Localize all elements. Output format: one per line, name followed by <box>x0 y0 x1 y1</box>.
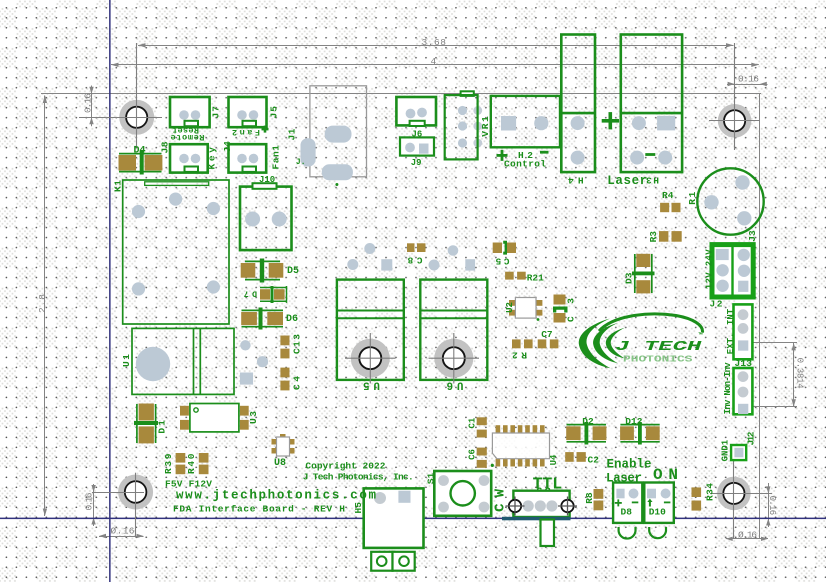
svg-text:Enable: Enable <box>607 458 652 472</box>
svg-text:2.8: 2.8 <box>37 294 48 313</box>
svg-text:H3: H3 <box>646 174 659 185</box>
svg-text:R4: R4 <box>662 190 674 201</box>
svg-text:D12: D12 <box>625 416 642 427</box>
svg-text:J12: J12 <box>746 431 757 445</box>
svg-text:C13: C13 <box>292 334 303 354</box>
svg-text:0.3814: 0.3814 <box>795 358 805 389</box>
svg-text:J1: J1 <box>287 128 298 140</box>
svg-text:3.68: 3.68 <box>422 37 447 48</box>
svg-text:D2: D2 <box>582 416 594 427</box>
svg-text:GND1: GND1 <box>721 439 731 461</box>
svg-text:INT: INT <box>726 308 736 325</box>
svg-text:J.: J. <box>296 158 306 167</box>
svg-text:U8: U8 <box>274 458 286 469</box>
svg-text:U1: U1 <box>121 354 132 367</box>
svg-text:12V 24V: 12V 24V <box>705 249 715 290</box>
svg-text:D4: D4 <box>134 146 146 157</box>
svg-text:D10: D10 <box>649 507 666 518</box>
svg-text:0.16: 0.16 <box>84 492 95 510</box>
svg-text:J8: J8 <box>160 141 171 153</box>
svg-text:D3: D3 <box>624 272 635 284</box>
svg-text:D6: D6 <box>286 314 298 325</box>
svg-text:J TECH: J TECH <box>615 339 702 355</box>
svg-text:Ø.16: Ø.16 <box>111 526 135 537</box>
svg-text:J Tech Photonics, Inc.: J Tech Photonics, Inc. <box>303 472 414 483</box>
svg-text:C2: C2 <box>588 454 600 465</box>
svg-text:U4: U4 <box>549 454 559 465</box>
svg-text:VR1: VR1 <box>480 116 491 137</box>
svg-text:Laser: Laser <box>607 174 647 188</box>
svg-text:J3: J3 <box>747 230 758 242</box>
svg-text:D5: D5 <box>287 266 299 277</box>
svg-text:Copyright 2022: Copyright 2022 <box>305 461 385 472</box>
svg-text:EXT.: EXT. <box>726 333 736 355</box>
svg-text:PHOTONICS: PHOTONICS <box>623 355 693 365</box>
svg-text:J7: J7 <box>211 106 222 119</box>
svg-text:J9: J9 <box>411 158 422 168</box>
svg-text:R21: R21 <box>527 272 544 283</box>
svg-text:J4: J4 <box>222 141 233 153</box>
svg-text:C6: C6 <box>468 449 478 460</box>
svg-text:Remote: Remote <box>171 132 205 142</box>
svg-text:www.jtechphotonics.com: www.jtechphotonics.com <box>176 489 376 503</box>
svg-text:R39: R39 <box>163 453 174 474</box>
svg-text:Ø.16: Ø.16 <box>738 530 757 541</box>
svg-text:U2: U2 <box>505 302 515 313</box>
svg-text:R3: R3 <box>648 231 659 243</box>
svg-text:D1: D1 <box>157 420 168 434</box>
svg-text:Control: Control <box>504 159 546 170</box>
svg-text:U3: U3 <box>248 411 259 424</box>
svg-text:R1: R1 <box>687 191 698 204</box>
svg-text:0.16: 0.16 <box>767 496 777 515</box>
svg-text:Fan1: Fan1 <box>271 145 282 170</box>
svg-text:H5: H5 <box>353 502 364 514</box>
svg-text:R34: R34 <box>705 483 716 501</box>
svg-text:J5: J5 <box>269 106 280 119</box>
svg-text:C7: C7 <box>541 329 553 340</box>
svg-text:0.16: 0.16 <box>738 74 759 85</box>
svg-text:J2: J2 <box>710 299 723 310</box>
svg-text:R40: R40 <box>186 453 197 474</box>
svg-text:Inv Non-Inv: Inv Non-Inv <box>723 362 733 415</box>
svg-text:Key: Key <box>207 147 218 170</box>
svg-text:R8: R8 <box>584 492 595 504</box>
svg-text:4: 4 <box>431 56 437 67</box>
svg-text:K1: K1 <box>113 180 124 192</box>
svg-text:D8: D8 <box>621 507 633 518</box>
svg-text:S1: S1 <box>426 472 437 484</box>
svg-text:FDA Interface Board - REV H: FDA Interface Board - REV H <box>173 504 345 515</box>
svg-text:™: ™ <box>699 332 703 339</box>
svg-text:0.16: 0.16 <box>83 93 94 113</box>
svg-text:C1: C1 <box>468 417 478 428</box>
